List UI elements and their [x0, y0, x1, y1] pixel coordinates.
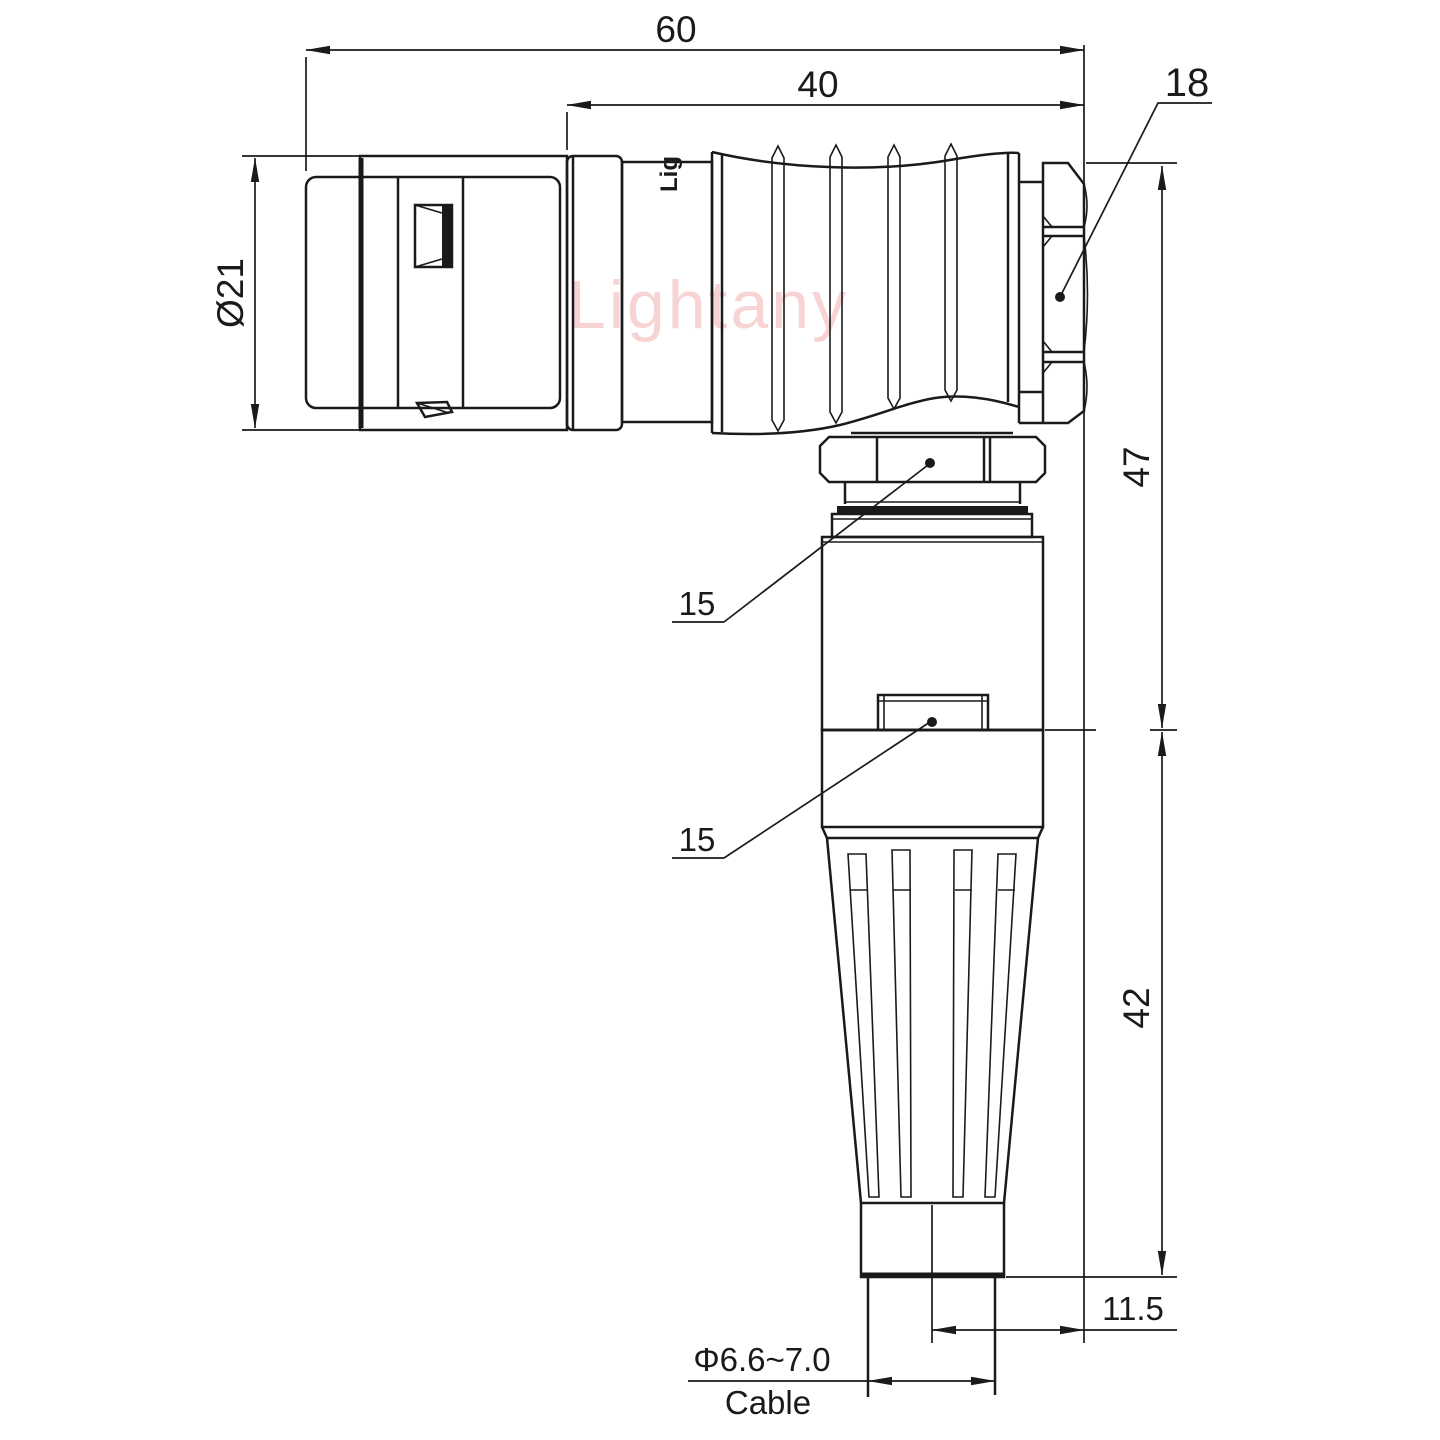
dimension-18: 18	[1055, 61, 1212, 302]
grip-top-edge	[712, 152, 1019, 168]
latch-window	[415, 205, 452, 267]
lower-cylinder	[822, 730, 1043, 827]
latch-window-bar	[442, 206, 451, 266]
taper-slot-3	[953, 850, 972, 1197]
taper-right-edge	[1004, 838, 1038, 1203]
dim-15a-label: 15	[679, 585, 716, 622]
knurl-band-3	[888, 145, 900, 409]
taper-shoulder	[822, 827, 1043, 838]
dim-cable-text-label: Cable	[725, 1384, 811, 1421]
dim-15a-leader	[724, 465, 928, 622]
taper-left-edge	[827, 838, 861, 1203]
watermark-text: Lightany	[568, 267, 849, 343]
grip-bottom-edge	[712, 396, 1019, 434]
rear-nut-chamfers	[1043, 216, 1052, 373]
latch-wedge	[417, 402, 452, 417]
connector-drawing: Lightany Lig	[0, 0, 1440, 1440]
flange	[832, 514, 1032, 537]
inner-sleeve	[306, 177, 560, 408]
knurl-band-4	[945, 144, 957, 401]
dim-42-label: 42	[1116, 987, 1157, 1028]
dim-18-label: 18	[1165, 61, 1210, 105]
taper-slot-2	[892, 850, 911, 1197]
dim-cable-dia-label: Φ6.6~7.0	[693, 1341, 830, 1378]
dim-40-label: 40	[797, 64, 838, 105]
taper-slot-1	[848, 854, 879, 1197]
technical-drawing-page: Lightany Lig	[0, 0, 1440, 1440]
dim-15b-label: 15	[679, 821, 716, 858]
dim-11-5-label: 11.5	[1102, 1290, 1164, 1327]
rear-nut-outline	[1043, 163, 1084, 423]
barrel-marking: Lig	[656, 156, 683, 192]
taper-slot-4	[985, 854, 1016, 1197]
dim-15b-leader-dot	[927, 717, 937, 727]
dimension-diameter-21: Ø21	[210, 156, 363, 430]
dim-21-label: Ø21	[210, 258, 251, 328]
dimension-cable: Φ6.6~7.0 Cable	[688, 1341, 995, 1421]
dimension-42: 42	[1006, 732, 1177, 1277]
dimension-47: 47	[1045, 45, 1177, 1343]
dim-47-label: 47	[1116, 446, 1157, 487]
rear-hex-nut	[1043, 163, 1088, 423]
dim-60-label: 60	[655, 9, 696, 50]
dim-15a-leader-dot	[925, 458, 935, 468]
dimension-60: 60	[306, 9, 1084, 171]
dim-18-leader-dot	[1055, 292, 1065, 302]
dimension-40: 40	[567, 64, 1084, 150]
strain-relief	[827, 838, 1038, 1203]
